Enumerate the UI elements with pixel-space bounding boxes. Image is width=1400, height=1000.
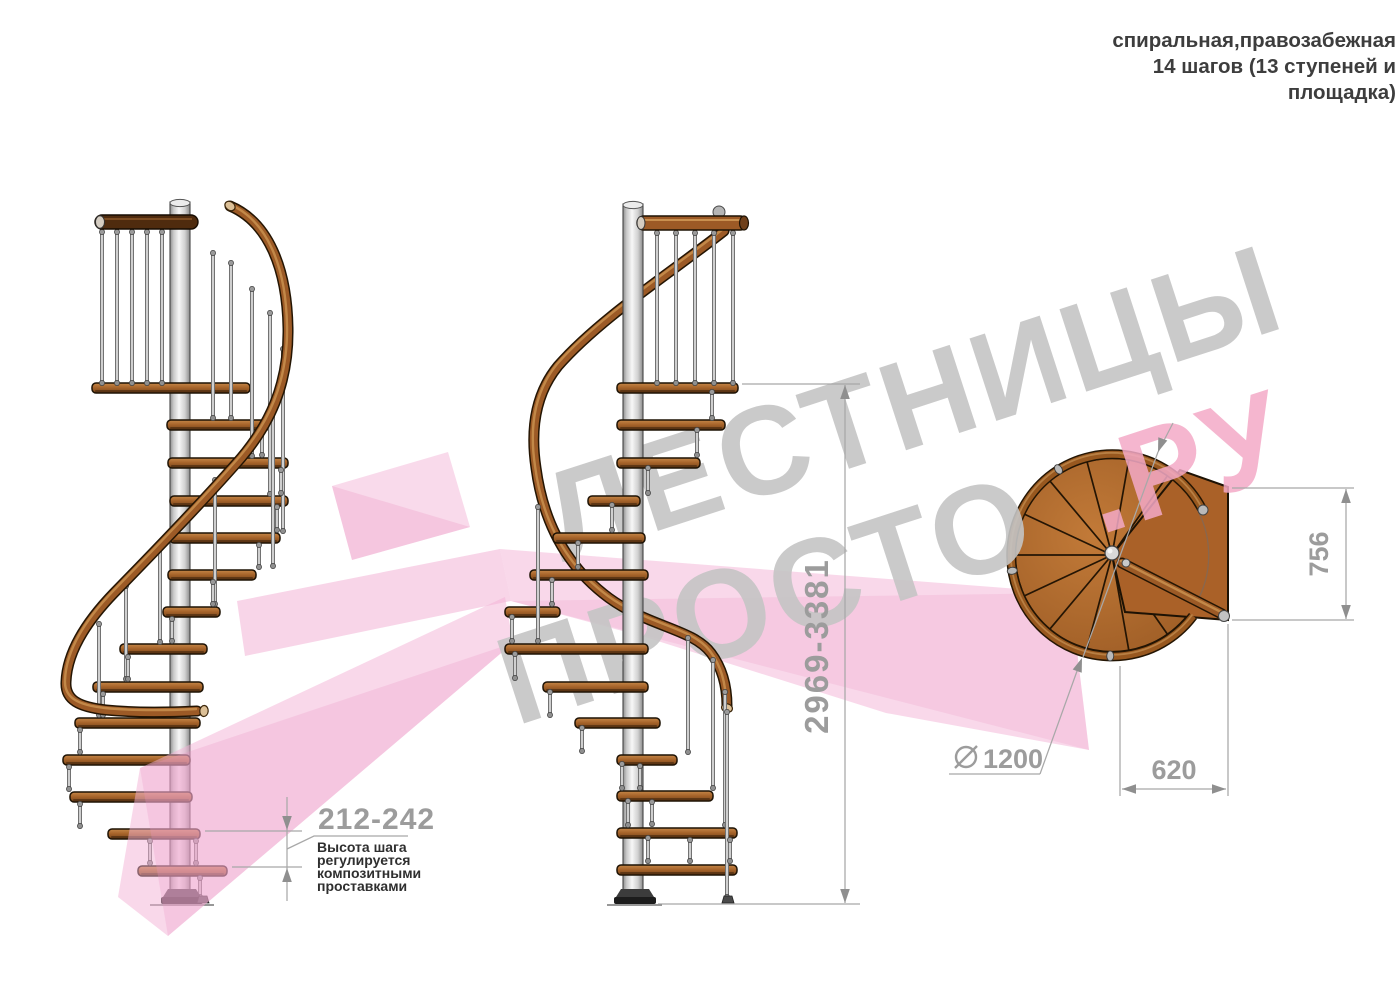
total-height-value: 2969-3381 — [798, 558, 835, 734]
baluster-knob — [711, 230, 716, 235]
baluster-knob — [228, 415, 233, 420]
baluster-knob — [549, 601, 554, 606]
baluster-knob — [267, 310, 272, 315]
baluster-knob — [77, 823, 82, 828]
baluster — [115, 230, 118, 385]
baluster-knob — [685, 749, 690, 754]
baluster — [158, 547, 161, 644]
landing-guardrail-bar — [637, 216, 747, 230]
rail-start-knob — [1122, 559, 1130, 567]
guardrail-end-cap — [96, 216, 105, 229]
step-height-value: 212-242 — [318, 803, 435, 836]
baluster — [100, 230, 103, 385]
baluster-knob — [509, 638, 514, 643]
baluster-knob — [99, 229, 104, 234]
baluster-knob — [210, 579, 215, 584]
baluster-knob — [637, 763, 642, 768]
step-shadow — [123, 651, 204, 653]
step-height-note-line: проставками — [317, 878, 407, 894]
baluster-knob — [711, 380, 716, 385]
baluster-knob — [730, 230, 735, 235]
baluster-knob — [609, 502, 614, 507]
baluster-knob — [694, 452, 699, 457]
baluster-knob — [579, 748, 584, 753]
baluster-knob — [96, 621, 101, 626]
baluster-knob — [249, 286, 254, 291]
arrow-up-icon — [282, 868, 292, 882]
baluster-knob — [210, 601, 215, 606]
baluster — [674, 231, 677, 385]
baluster-knob — [649, 821, 654, 826]
baluster-knob — [709, 415, 714, 420]
baluster-knob — [159, 380, 164, 385]
baluster-knob — [730, 380, 735, 385]
pole-base-plate — [614, 897, 656, 904]
baluster-knob — [256, 564, 261, 569]
title-line: спиральная,правозабежная — [1112, 29, 1396, 52]
baluster-knob — [274, 504, 279, 509]
baluster-knob — [709, 389, 714, 394]
baluster-knob — [66, 764, 71, 769]
landing-guardrail-bar — [95, 215, 198, 229]
step-shadow — [171, 577, 253, 579]
baluster-knob — [547, 712, 552, 717]
baluster-knob — [727, 858, 732, 863]
ring-baluster-mark — [1107, 651, 1114, 661]
spiral-staircase-drawing: ЛЕСТНИЦЫ ПРОСТО .РУ 2969-3381 212-242 Вы… — [0, 0, 1400, 1000]
baluster-knob — [722, 689, 727, 694]
baluster-knob — [619, 761, 624, 766]
baluster-knob — [645, 490, 650, 495]
baluster-knob — [278, 467, 283, 472]
baluster — [145, 230, 148, 385]
baluster-knob — [625, 822, 630, 827]
guardrail-end-cap — [637, 217, 645, 230]
baluster-knob — [66, 786, 71, 791]
baluster-knob — [637, 785, 642, 790]
step-shadow — [173, 540, 277, 542]
baluster-knob — [100, 691, 105, 696]
diameter-value: 1200 — [983, 744, 1043, 774]
baluster-knob — [687, 837, 692, 842]
step-shadow — [556, 540, 642, 542]
baluster-knob — [280, 528, 285, 533]
baluster-knob — [673, 230, 678, 235]
pole-base — [616, 889, 654, 897]
baluster-knob — [685, 635, 690, 640]
baluster-knob — [144, 380, 149, 385]
baluster-knob — [625, 798, 630, 803]
baluster-knob — [114, 229, 119, 234]
baluster-knob — [575, 540, 580, 545]
baluster-knob — [673, 380, 678, 385]
pole-cap — [623, 201, 643, 208]
step-shadow — [620, 835, 734, 837]
baluster-knob — [687, 858, 692, 863]
baluster — [711, 658, 714, 790]
baluster-knob — [114, 380, 119, 385]
baluster — [725, 710, 728, 899]
baluster — [712, 231, 715, 385]
baluster-knob — [609, 527, 614, 532]
step-shadow — [620, 872, 734, 874]
baluster-knob — [724, 709, 729, 714]
step-shadow — [166, 614, 217, 616]
baluster-knob — [274, 527, 279, 532]
baluster-knob — [547, 689, 552, 694]
baluster-knob — [129, 229, 134, 234]
arrow-down-icon — [840, 889, 850, 903]
baluster — [693, 231, 696, 385]
step-shadow — [620, 465, 697, 467]
baluster-knob — [654, 230, 659, 235]
baluster-knob — [512, 675, 517, 680]
step-shadow — [78, 725, 197, 727]
baluster-knob — [619, 785, 624, 790]
arrow-right-icon — [1212, 784, 1226, 794]
going-width-value: 620 — [1151, 755, 1196, 785]
baluster — [655, 231, 658, 385]
step-shadow — [173, 503, 285, 505]
step-shadow — [508, 614, 557, 616]
baluster-knob — [169, 638, 174, 643]
step-shadow — [620, 427, 722, 429]
baluster-knob — [256, 542, 261, 547]
rail-end-ball — [1219, 611, 1230, 622]
baluster — [130, 230, 133, 385]
baluster-knob — [727, 837, 732, 842]
baluster-foot — [722, 896, 734, 903]
baluster-knob — [144, 229, 149, 234]
baluster-knob — [228, 260, 233, 265]
baluster-knob — [278, 490, 283, 495]
baluster-knob — [649, 799, 654, 804]
step-shadow — [546, 689, 645, 691]
title-line: 14 шагов (13 ступеней и — [1153, 55, 1396, 78]
baluster — [731, 231, 734, 385]
baluster-knob — [210, 415, 215, 420]
baluster-knob — [535, 638, 540, 643]
baluster-knob — [549, 577, 554, 582]
step-shadow — [620, 762, 674, 764]
guardrail-end-ring — [740, 216, 749, 230]
baluster — [686, 636, 689, 754]
baluster-knob — [509, 614, 514, 619]
arrow-left-icon — [1122, 784, 1136, 794]
step-shadow — [620, 798, 710, 800]
baluster-knob — [125, 676, 130, 681]
baluster — [271, 404, 274, 568]
step-shadow — [96, 689, 200, 691]
baluster — [229, 261, 232, 420]
baluster-knob — [692, 230, 697, 235]
baluster-knob — [210, 250, 215, 255]
handrail-end-cap — [199, 705, 208, 717]
baluster — [536, 505, 539, 643]
drawing-canvas: ЛЕСТНИЦЫ ПРОСТО .РУ 2969-3381 212-242 Вы… — [0, 0, 1400, 1000]
baluster-knob — [645, 858, 650, 863]
step-shadow — [95, 390, 247, 392]
landing-depth-value: 756 — [1304, 531, 1334, 576]
baluster — [97, 622, 100, 717]
baluster-knob — [169, 616, 174, 621]
baluster-knob — [710, 785, 715, 790]
baluster-knob — [575, 564, 580, 569]
baluster-knob — [512, 651, 517, 656]
baluster — [211, 251, 214, 420]
baluster-knob — [270, 563, 275, 568]
baluster-knob — [77, 749, 82, 754]
baluster-knob — [710, 657, 715, 662]
baluster-knob — [654, 380, 659, 385]
baluster-knob — [645, 835, 650, 840]
baluster-knob — [99, 380, 104, 385]
step-shadow — [508, 651, 645, 653]
baluster-knob — [579, 725, 584, 730]
baluster-knob — [259, 452, 264, 457]
step-shadow — [620, 390, 735, 392]
baluster-knob — [694, 427, 699, 432]
step-shadow — [578, 725, 657, 727]
baluster-knob — [159, 229, 164, 234]
baluster-knob — [77, 801, 82, 806]
baluster — [250, 287, 253, 458]
title-line: площадка) — [1288, 81, 1396, 104]
pole-cap — [170, 199, 190, 206]
baluster-knob — [692, 380, 697, 385]
baluster-knob — [157, 639, 162, 644]
title-block: спиральная,правозабежная 14 шагов (13 ст… — [1112, 29, 1396, 104]
baluster-knob — [129, 380, 134, 385]
baluster-knob — [77, 727, 82, 732]
arrow-up-icon — [1341, 489, 1351, 503]
baluster — [160, 230, 163, 385]
baluster-knob — [645, 465, 650, 470]
arrow-down-icon — [1341, 605, 1351, 619]
baluster-knob — [125, 654, 130, 659]
baluster-knob — [535, 504, 540, 509]
